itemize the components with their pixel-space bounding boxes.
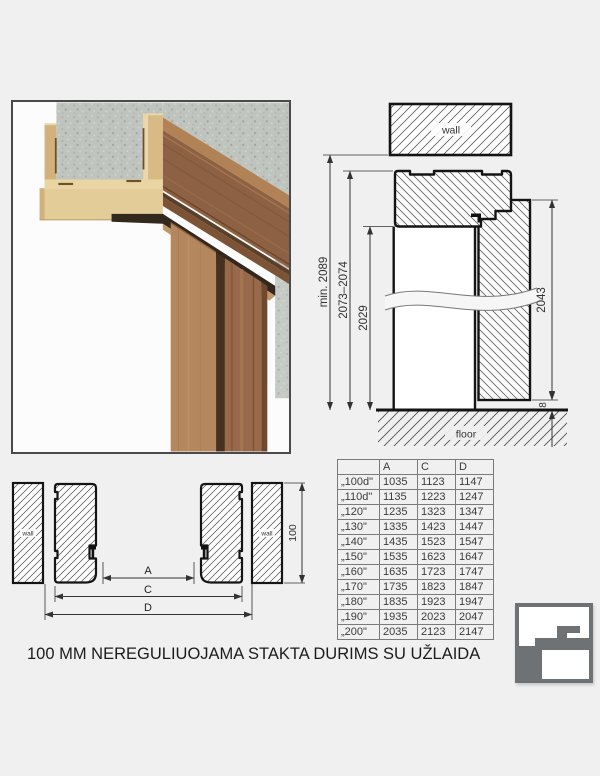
table-cell: 2023	[418, 610, 456, 625]
table-cell: „110d"	[338, 490, 380, 505]
opening-area	[394, 226, 475, 410]
table-cell: 1835	[380, 595, 418, 610]
size-table: ACD „100d"103511231147„110d"113512231247…	[337, 459, 494, 640]
mdf-left-arm	[45, 125, 57, 183]
table-cell: 1735	[380, 580, 418, 595]
seal-detail	[90, 546, 96, 558]
table-cell: 1947	[456, 595, 494, 610]
table-cell: 1847	[456, 580, 494, 595]
table-cell: „200"	[338, 625, 380, 640]
table-cell: 1335	[380, 520, 418, 535]
jamb-groove	[216, 252, 225, 451]
table-row: „160"163517231747	[338, 565, 494, 580]
table-cell: 1647	[456, 550, 494, 565]
mdf-slot	[55, 138, 57, 173]
frame-profile-logo-icon	[519, 607, 589, 679]
table-header-cell: C	[418, 460, 456, 475]
table-row: „190"193520232047	[338, 610, 494, 625]
table-header-cell: D	[456, 460, 494, 475]
table-row: „100d"103511231147	[338, 475, 494, 490]
table-cell: 1923	[418, 595, 456, 610]
table-row: „140"143515231547	[338, 535, 494, 550]
frame-corner-photo	[11, 100, 291, 454]
dim-frame-depth: 100	[287, 524, 299, 542]
table-cell: 1323	[418, 505, 456, 520]
jamb-inner-face	[171, 223, 216, 452]
table-cell: 1147	[456, 475, 494, 490]
table-row: „130"133514231447	[338, 520, 494, 535]
table-cell: „160"	[338, 565, 380, 580]
table-cell: 1235	[380, 505, 418, 520]
table-row: „110d"113512231247	[338, 490, 494, 505]
table-row: „180"183519231947	[338, 595, 494, 610]
dim-frame-outer-height: 2073–2074	[338, 261, 350, 319]
wall-label: wall	[441, 125, 460, 137]
table-cell: 1135	[380, 490, 418, 505]
table-header-row: ACD	[338, 460, 494, 475]
table-cell: 1635	[380, 565, 418, 580]
table-cell: „140"	[338, 535, 380, 550]
jamb-outer-bevel	[261, 282, 267, 452]
mdf-slot	[143, 128, 145, 169]
frame-profile-right	[190, 480, 250, 588]
table-cell: „150"	[338, 550, 380, 565]
table-cell: 2123	[418, 625, 456, 640]
table-cell: 1123	[418, 475, 456, 490]
dim-min-total-height: min. 2089	[318, 257, 330, 308]
table-cell: 1423	[418, 520, 456, 535]
table-row: „120"123513231347	[338, 505, 494, 520]
table-cell: 1035	[380, 475, 418, 490]
table-cell: 2047	[456, 610, 494, 625]
table-cell: 1623	[418, 550, 456, 565]
table-cell: „100d"	[338, 475, 380, 490]
table-cell: „130"	[338, 520, 380, 535]
wall-right: wall	[252, 483, 282, 583]
dim-door-leaf-height: 2043	[536, 287, 548, 313]
table-row: „150"153516231647	[338, 550, 494, 565]
table-cell: „170"	[338, 580, 380, 595]
table-cell: 1547	[456, 535, 494, 550]
floor: floor	[376, 410, 568, 446]
table-cell: „120"	[338, 505, 380, 520]
vertical-section-diagram: wall floor	[315, 85, 600, 460]
table-row: „200"203521232147	[338, 625, 494, 640]
table-cell: 1435	[380, 535, 418, 550]
table-cell: 2147	[456, 625, 494, 640]
table-cell: 2035	[380, 625, 418, 640]
wall-left: wall	[13, 483, 43, 583]
table-cell: 1747	[456, 565, 494, 580]
table-cell: 1347	[456, 505, 494, 520]
wall-right-label: wall	[260, 531, 273, 538]
dim-floor-gap: 8	[538, 402, 549, 408]
table-cell: 1447	[456, 520, 494, 535]
floor-label: floor	[456, 429, 477, 441]
wall-block: wall	[390, 104, 511, 155]
dim-a: A	[144, 565, 152, 577]
table-cell: 1823	[418, 580, 456, 595]
table-cell: 1935	[380, 610, 418, 625]
table-header-cell	[338, 460, 380, 475]
table-cell: 1535	[380, 550, 418, 565]
table-cell: 1247	[456, 490, 494, 505]
frame-profile-left	[55, 484, 96, 583]
table-cell: „190"	[338, 610, 380, 625]
horizontal-section-diagram: wall wall A C	[5, 462, 315, 637]
table-cell: „180"	[338, 595, 380, 610]
dim-d: D	[144, 602, 152, 614]
table-row: „170"173518231847	[338, 580, 494, 595]
dim-opening-height: 2029	[358, 305, 370, 331]
wall-left-label: wall	[21, 531, 34, 538]
frame-head-profile	[395, 171, 511, 227]
frame-corner-render	[13, 102, 289, 452]
product-caption: 100 MM NEREGULIUOJAMA STAKTA DURIMS SU U…	[27, 645, 507, 664]
dim-c: C	[144, 584, 152, 596]
table-cell: 1723	[418, 565, 456, 580]
brand-logo	[515, 603, 593, 683]
table-cell: 1223	[418, 490, 456, 505]
table-cell: 1523	[418, 535, 456, 550]
table-header-cell: A	[380, 460, 418, 475]
